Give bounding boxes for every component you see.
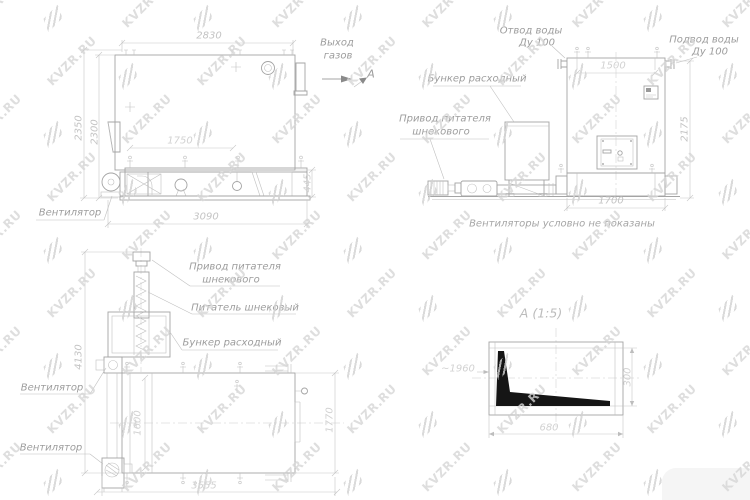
water-supply-label-line1: Подвод воды: [669, 35, 738, 46]
gas-outlet-label-line2: газов: [324, 51, 353, 62]
detail-ref-length: ~1960: [441, 364, 475, 375]
drive-label-plan-line1: Привод питателя: [189, 262, 281, 273]
chimney-plan: [302, 388, 308, 394]
dim-plan-width-right: 1770: [325, 407, 336, 432]
gas-outlet-label-line1: Выход: [320, 38, 354, 49]
fan-label-side: Вентилятор: [39, 208, 102, 219]
fan-bottom-label: Вентилятор: [20, 443, 83, 454]
fan-top-plan: [104, 357, 122, 373]
detail-dim-width: 680: [539, 423, 558, 434]
detail-title: А (1:5): [520, 306, 562, 321]
screw-feeder-label: Питатель шнековый: [191, 303, 299, 314]
drive-label-plan-line2: шнекового: [202, 275, 259, 286]
gearbox: [461, 181, 497, 196]
drive-label-front-line2: шнекового: [412, 127, 469, 138]
feeder-motor-plan: [133, 252, 150, 261]
dim-plan-width-inner: 1600: [133, 410, 144, 435]
dim-grate-inner: 1750: [167, 136, 192, 147]
base-frame: [120, 196, 310, 200]
center-marks: [125, 62, 241, 112]
dim-height-inner: 2300: [90, 119, 101, 144]
water-outlet-label-line2: Ду 100: [519, 38, 555, 49]
dim-front-width: 1700: [598, 196, 623, 207]
water-supply-label-line2: Ду 100: [692, 47, 728, 58]
dim-base-height: 445: [303, 173, 314, 192]
fan-top-label: Вентилятор: [21, 383, 84, 394]
side-view-linework: [36, 40, 367, 228]
hopper-label-plan: Бункер расходный: [183, 338, 282, 349]
dim-front-height: 2175: [680, 116, 691, 141]
deposit-wedge: [496, 351, 610, 406]
water-outlet-label-line1: Отвод воды: [500, 26, 563, 37]
hopper-label-front: Бункер расходный: [428, 74, 527, 85]
feed-duct: [108, 122, 120, 152]
dim-height-outer: 2350: [74, 115, 85, 140]
sight-glass: [262, 62, 275, 75]
dim-plan-height-total: 4130: [74, 344, 85, 369]
boiler-body-side: [115, 55, 295, 170]
bolt-symbols: [127, 160, 304, 168]
drive-label-front-line1: Привод питателя: [399, 114, 491, 125]
section-letter: А: [367, 68, 375, 81]
hopper-front: [505, 122, 549, 180]
detail-view-linework: [472, 328, 640, 438]
chimney-stub: [294, 63, 307, 95]
air-duct: [107, 373, 117, 458]
conveyor-roller: [175, 179, 187, 191]
plan-view-linework: [20, 248, 344, 496]
detail-dim-height: 300: [623, 367, 634, 386]
dim-plan-length: 3555: [191, 481, 216, 492]
dim-width-top: 2830: [196, 31, 221, 42]
fan-wheel: [102, 173, 120, 191]
fans-note: Вентиляторы условно не показаны: [469, 219, 655, 230]
dim-length-total: 3090: [193, 212, 218, 223]
dim-pipe-spacing: 1500: [600, 61, 625, 72]
boiler-technical-drawing: Выход газов А Вентилятор 2830 2350 2300 …: [0, 0, 750, 500]
top-lugs: [124, 50, 294, 55]
